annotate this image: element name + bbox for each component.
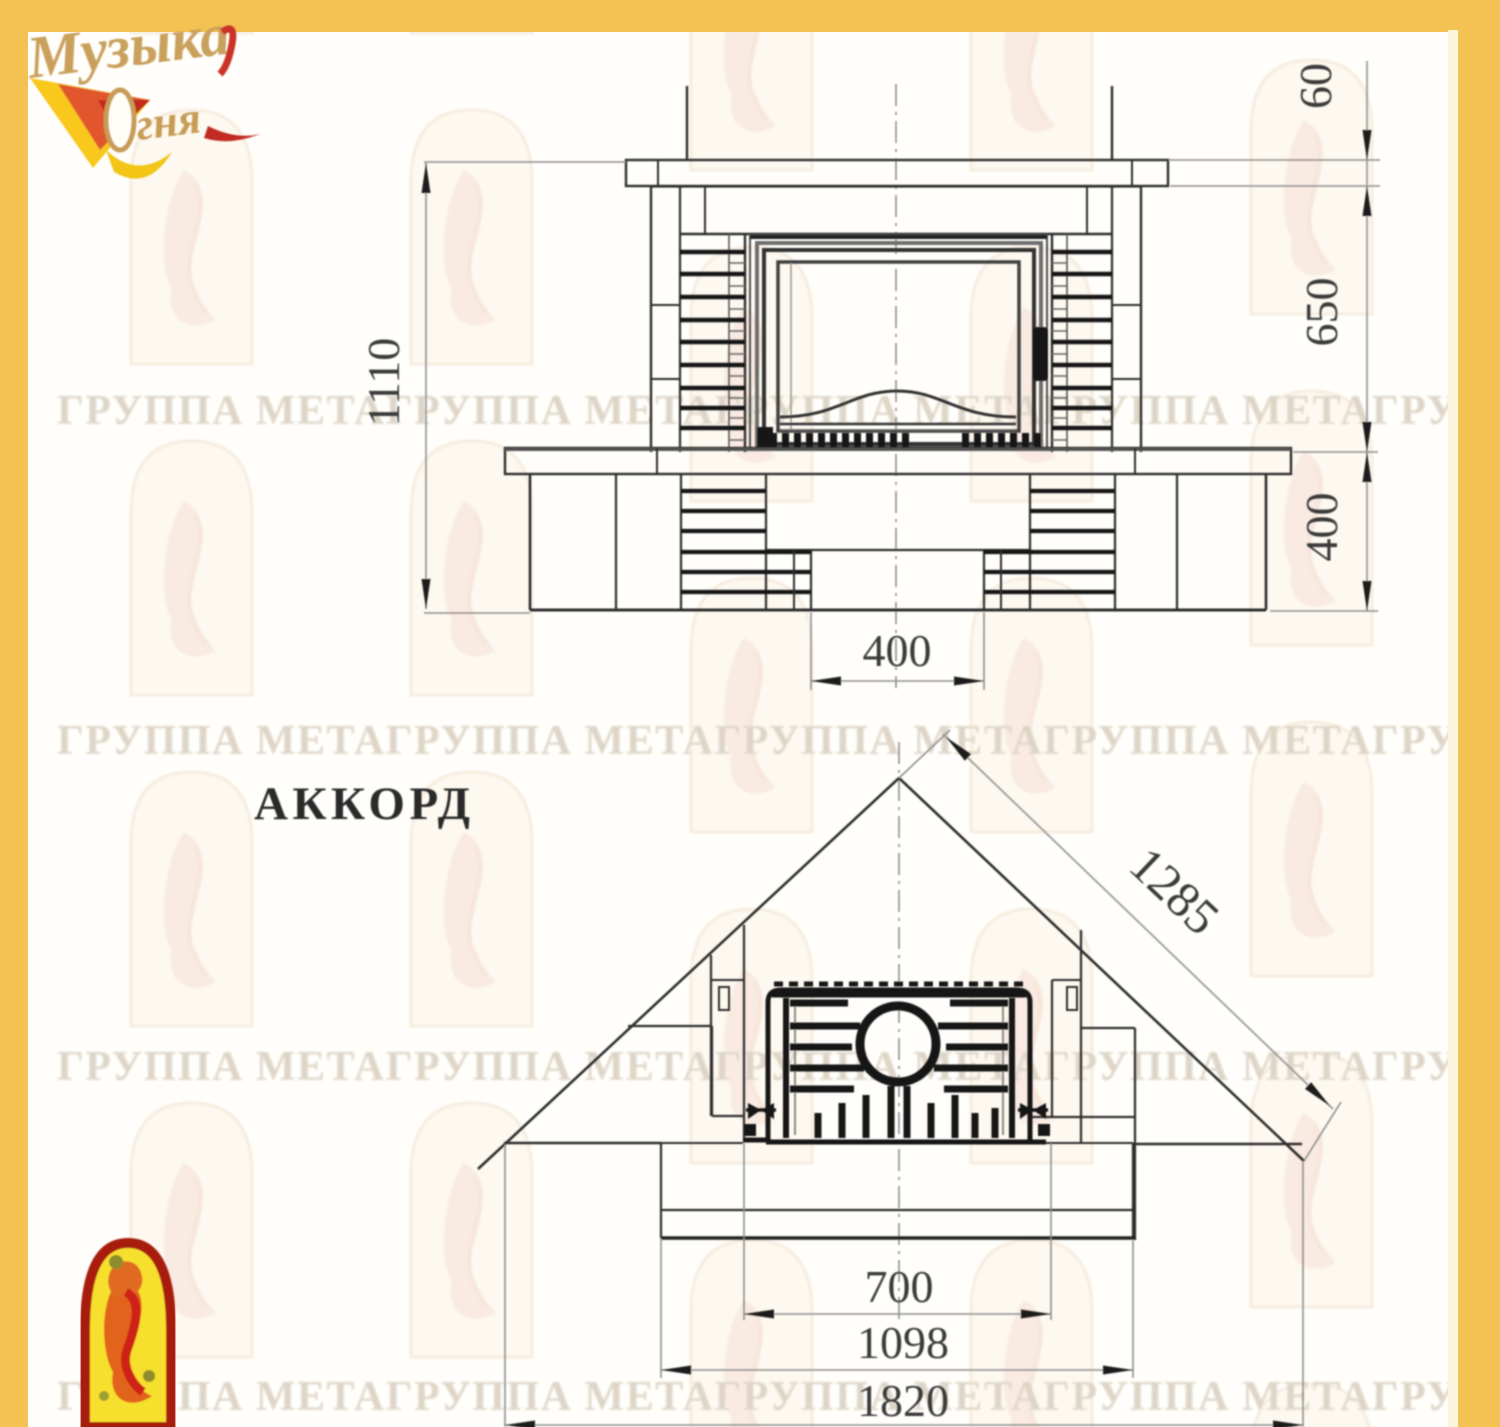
- svg-text:ГРУППА МЕТАГРУППА МЕТАГРУППА М: ГРУППА МЕТАГРУППА МЕТАГРУППА МЕТАГРУППА …: [57, 718, 1500, 764]
- svg-text:1098: 1098: [857, 1317, 949, 1368]
- svg-text:1820: 1820: [857, 1375, 949, 1426]
- svg-text:1110: 1110: [358, 338, 409, 427]
- svg-text:650: 650: [1296, 278, 1347, 347]
- svg-text:гня: гня: [133, 92, 203, 150]
- svg-text:ГРУППА МЕТАГРУППА МЕТАГРУППА М: ГРУППА МЕТАГРУППА МЕТАГРУППА МЕТАГРУППА …: [57, 1374, 1500, 1420]
- svg-text:ГРУППА МЕТАГРУППА МЕТАГРУППА М: ГРУППА МЕТАГРУППА МЕТАГРУППА МЕТАГРУППА …: [57, 1044, 1500, 1090]
- svg-text:1285: 1285: [1119, 836, 1230, 945]
- svg-text:400: 400: [1296, 493, 1347, 562]
- svg-text:400: 400: [863, 625, 932, 676]
- svg-text:700: 700: [865, 1261, 934, 1312]
- svg-text:60: 60: [1290, 63, 1341, 109]
- svg-text:АККОРД: АККОРД: [254, 778, 475, 830]
